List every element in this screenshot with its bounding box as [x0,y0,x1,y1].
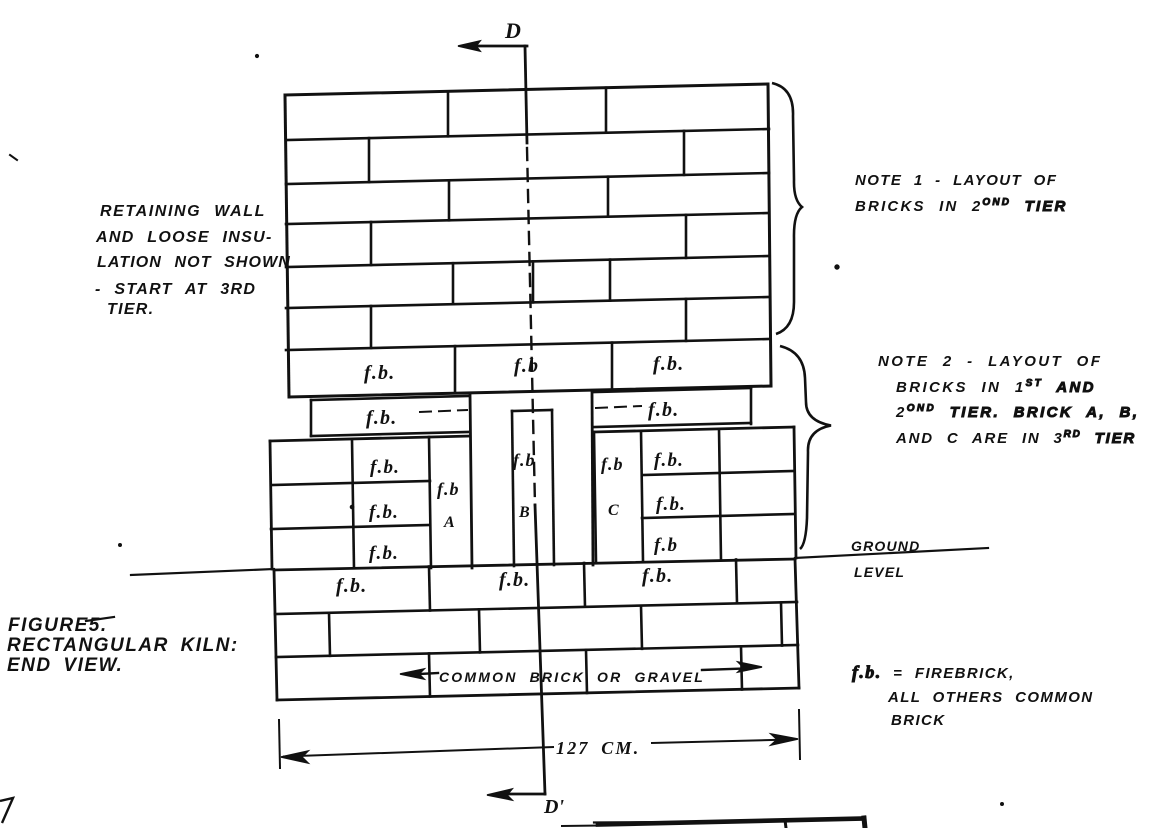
svg-text:f.b.: f.b. [336,575,367,597]
svg-text:ALL OTHERS COMMON: ALL OTHERS COMMON [887,689,1094,706]
svg-text:f.b: f.b [514,355,539,377]
svg-text:B: B [518,504,530,521]
svg-text:f.b: f.b [513,450,536,470]
svg-text:f.b.: f.b. [366,407,397,429]
svg-text:D: D [504,18,521,43]
svg-text:C: C [608,502,619,519]
svg-text:f.b.: f.b. [654,450,684,471]
svg-text:RECTANGULAR KILN:: RECTANGULAR KILN: [7,635,239,656]
svg-text:NOTE 1 - LAYOUT OF: NOTE 1 - LAYOUT OF [855,172,1057,189]
svg-text:f.b: f.b [601,454,624,474]
svg-text:f.b.: f.b. [642,565,673,587]
svg-text:LEVEL: LEVEL [854,564,905,580]
svg-text:f.b.: f.b. [499,569,530,591]
svg-text:TIER.: TIER. [107,301,154,318]
svg-text:AND C ARE IN 3RD TIER: AND C ARE IN 3RD TIER [895,429,1136,447]
svg-text:BRICK: BRICK [891,712,946,729]
svg-text:BRICKS IN 2OND TIER: BRICKS IN 2OND TIER [855,197,1068,215]
svg-text:f.b.: f.b. [648,399,679,421]
svg-text:f.b.: f.b. [369,502,399,523]
svg-text:AND LOOSE INSU-: AND LOOSE INSU- [95,229,273,246]
svg-text:END VIEW.: END VIEW. [7,655,123,676]
svg-text:127 CM.: 127 CM. [556,738,640,758]
svg-text:f.b. = FIREBRICK,: f.b. = FIREBRICK, [852,662,1015,682]
svg-text:f.b.: f.b. [364,362,395,384]
svg-text:COMMON BRICK OR GRAVEL: COMMON BRICK OR GRAVEL [439,669,705,685]
svg-text:2OND TIER. BRICK A, B,: 2OND TIER. BRICK A, B, [895,403,1139,421]
svg-text:f.b.: f.b. [370,457,400,478]
svg-text:FIGURE5.: FIGURE5. [8,615,108,636]
svg-text:D': D' [543,796,564,818]
svg-text:f.b.: f.b. [656,494,686,515]
svg-text:BRICKS IN 1ST AND: BRICKS IN 1ST AND [896,378,1096,396]
svg-text:f.b: f.b [654,535,678,556]
svg-text:RETAINING WALL: RETAINING WALL [100,203,266,220]
svg-text:- START AT 3RD: - START AT 3RD [95,281,256,298]
svg-text:NOTE 2 - LAYOUT OF: NOTE 2 - LAYOUT OF [878,353,1102,370]
svg-text:GROUND: GROUND [851,538,920,554]
svg-text:f.b.: f.b. [653,353,684,375]
svg-text:A: A [443,514,455,531]
svg-text:f.b: f.b [437,479,460,499]
svg-text:f.b.: f.b. [369,543,399,564]
svg-text:LATION NOT SHOWN: LATION NOT SHOWN [97,254,291,271]
